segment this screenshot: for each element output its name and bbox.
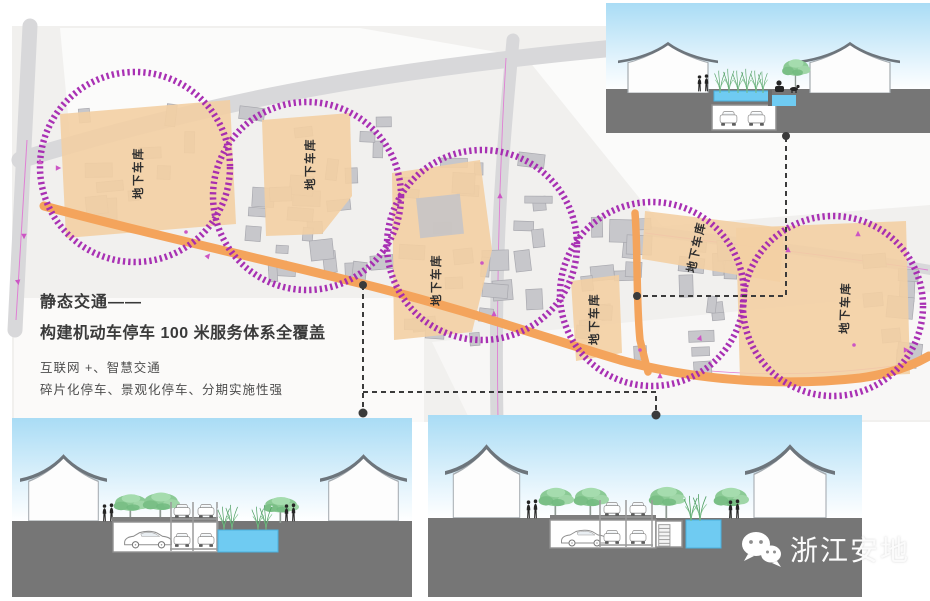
wechat-icon bbox=[740, 529, 784, 569]
building-footprint bbox=[309, 239, 334, 262]
planning-dot-marker bbox=[852, 343, 856, 347]
building-footprint bbox=[276, 245, 289, 254]
cross-section-bottom-left bbox=[12, 418, 412, 597]
water-pool bbox=[686, 520, 721, 548]
building-footprint bbox=[376, 117, 391, 127]
planning-dot-marker bbox=[638, 348, 642, 352]
cross-section-bottom-middle bbox=[428, 415, 862, 597]
car-lift-shaft bbox=[656, 521, 682, 547]
watermark: 浙江安地 bbox=[740, 529, 910, 569]
building-footprint bbox=[360, 131, 375, 142]
bullet-line: 互联网 +、智慧交通 bbox=[40, 357, 410, 379]
garage-label: 地下车库 bbox=[303, 138, 317, 190]
water-pool bbox=[218, 530, 278, 552]
section-title: 静态交通—— bbox=[40, 288, 410, 312]
water-channel bbox=[714, 91, 770, 101]
cross-section-top-right bbox=[606, 3, 930, 133]
building-footprint bbox=[514, 250, 532, 273]
garage-label: 地下车库 bbox=[429, 254, 443, 306]
channel-edge bbox=[768, 90, 772, 106]
planning-dot-marker bbox=[184, 230, 188, 234]
garage-label: 地下车库 bbox=[131, 147, 145, 199]
building-footprint bbox=[712, 312, 725, 320]
water-step bbox=[772, 95, 796, 106]
section-subtitle: 构建机动车停车 100 米服务体系全覆盖 bbox=[40, 319, 410, 343]
bullet-line: 碎片化停车、景观化停车、分期实施性强 bbox=[40, 379, 410, 401]
building-footprint bbox=[248, 207, 266, 217]
building-footprint bbox=[525, 196, 553, 203]
building-footprint bbox=[514, 221, 534, 231]
garage-parcel bbox=[736, 221, 910, 381]
building-footprint bbox=[482, 283, 509, 299]
watermark-brand: 浙江安地 bbox=[790, 529, 910, 569]
annotation-text-block: 静态交通—— 构建机动车停车 100 米服务体系全覆盖 互联网 +、智慧交通 碎… bbox=[40, 288, 410, 401]
building-footprint bbox=[416, 194, 464, 238]
building-footprint bbox=[679, 275, 693, 298]
building-footprint bbox=[692, 347, 710, 356]
building-footprint bbox=[531, 229, 544, 248]
garage-label: 地下车库 bbox=[587, 293, 601, 345]
planning-dot-marker bbox=[480, 261, 484, 265]
building-footprint bbox=[526, 289, 543, 310]
building-footprint bbox=[706, 296, 717, 314]
building-footprint bbox=[245, 226, 261, 242]
